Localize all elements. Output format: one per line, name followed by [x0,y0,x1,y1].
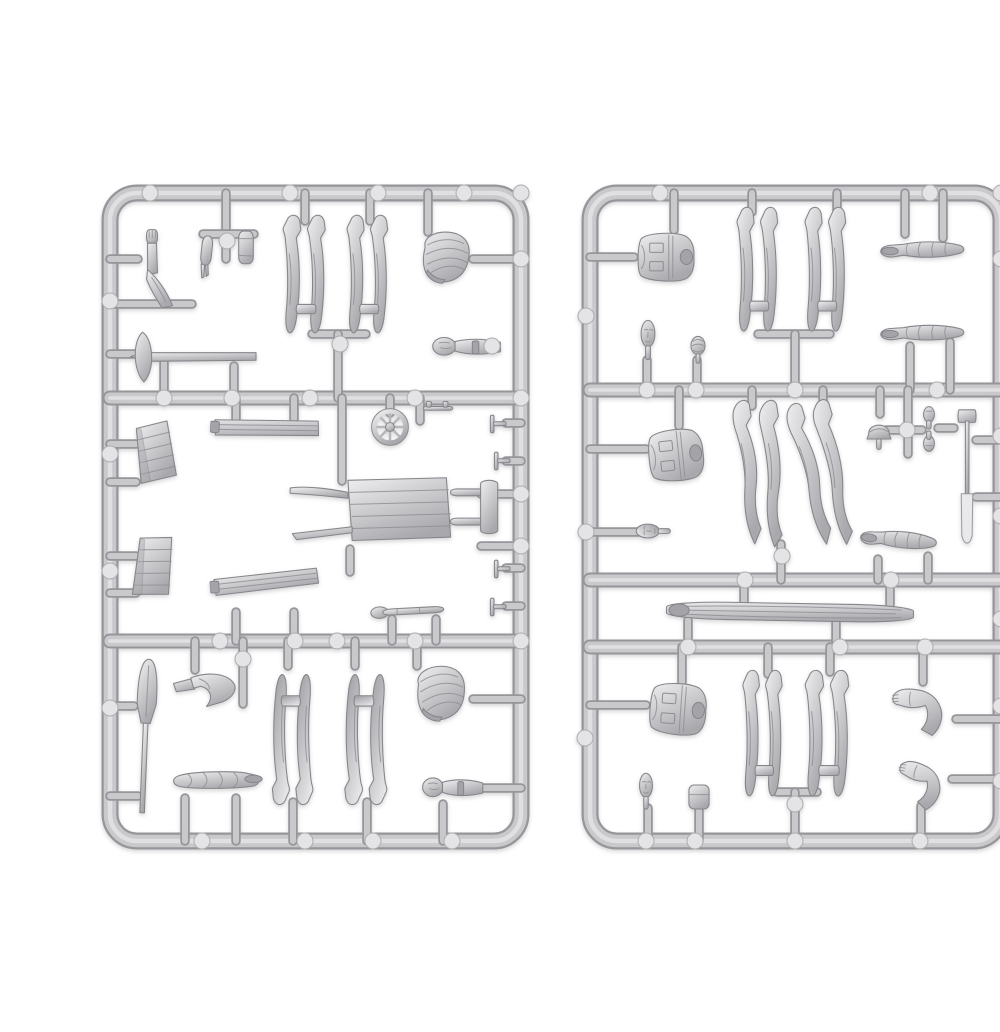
wheelbarrow-part [290,478,498,541]
ejector-pad [102,700,118,716]
ejector-pad [513,185,529,201]
ejector-pad [444,833,460,849]
legs-part [785,398,854,550]
ejector-pad [156,390,172,406]
ejector-pad [922,185,938,201]
legs-part [733,400,782,547]
ejector-pad [912,833,928,849]
ejector-pad [102,293,118,309]
cap-part [867,425,891,449]
head-and-socket-part [423,778,483,797]
right-sprue-frame [590,193,1000,841]
ejector-pad [513,486,529,502]
clip-part [490,598,506,616]
ejector-pad [687,833,703,849]
ejector-pad [332,336,348,352]
legs-part [805,207,846,331]
ejector-pad [929,382,945,398]
sprue-product-photo [40,16,1000,1016]
ejector-pad [688,382,704,398]
torso-part [648,682,707,737]
ejector-pad [513,538,529,554]
plank-part [210,415,319,440]
ejector-pad [680,639,696,655]
log-part [666,601,913,623]
plank-part [209,568,319,596]
ejector-pad [787,796,803,812]
ejector-pad [302,390,318,406]
ejector-pad [737,572,753,588]
ejector-pad [456,185,472,201]
legs-part [283,215,325,333]
legs-part [805,670,849,796]
legs-part [737,207,778,331]
clip-part [490,415,506,433]
right-sprue-frame [590,193,1000,841]
legs-part [345,675,387,805]
ejector-pad [194,833,210,849]
ejector-pad [224,390,240,406]
wheel-part [372,409,409,446]
head-part [641,320,655,359]
clip-part [494,452,510,470]
right-sprue-frame [590,193,1000,841]
torso-part [638,233,694,281]
ejector-pad [365,833,381,849]
ejector-pad [407,390,423,406]
bent-arm-part [892,689,942,735]
ejector-pad [287,633,303,649]
bent-leg-part [173,674,235,706]
crate-part [134,421,177,484]
sprue-scene [40,16,1000,1016]
ejector-pad [787,382,803,398]
ejector-pad [235,651,251,667]
ejector-pad [102,563,118,579]
ejector-pad [578,308,594,324]
ejector-pad [370,185,386,201]
ejector-pad [917,639,933,655]
ejector-pad [297,833,313,849]
ejector-pad [142,185,158,201]
ejector-pad [102,446,118,462]
shovel-part [131,659,158,813]
ejector-pad [513,251,529,267]
pouch-part [689,785,709,809]
bedroll-part [174,772,263,789]
ejector-pad [652,185,668,201]
canteen-part [239,231,254,264]
forearm-hand-part [199,235,214,278]
ejector-pad [513,633,529,649]
right-sprue [577,185,1000,849]
ejector-pad [774,548,790,564]
ejector-pad [787,833,803,849]
legs-part [272,675,313,805]
torso-part [646,427,705,484]
raised-arm-part [147,230,173,308]
legs-part [743,670,782,796]
ejector-pad [883,572,899,588]
legs-part [347,215,388,333]
ejector-pad [484,338,500,354]
clip-part [494,560,510,578]
ejector-pad [219,233,235,249]
crate-part [132,534,174,598]
arm-part [881,325,964,340]
backpack-part [423,232,469,283]
arm-part [881,242,964,257]
backpack-part [415,664,467,722]
ejector-pad [578,524,594,540]
spade-part [958,410,976,543]
ejector-pad [212,633,228,649]
left-sprue [102,185,529,849]
head-part [640,773,653,809]
ejector-pad [638,833,654,849]
ejector-pad [577,730,593,746]
ejector-pad [329,633,345,649]
ejector-pad [282,185,298,201]
ejector-pad [639,382,655,398]
arm-part [860,527,937,551]
head-part [636,524,670,538]
ejector-pad [407,633,423,649]
ejector-pad [899,422,915,438]
ejector-pad [513,390,529,406]
ejector-pad [832,639,848,655]
